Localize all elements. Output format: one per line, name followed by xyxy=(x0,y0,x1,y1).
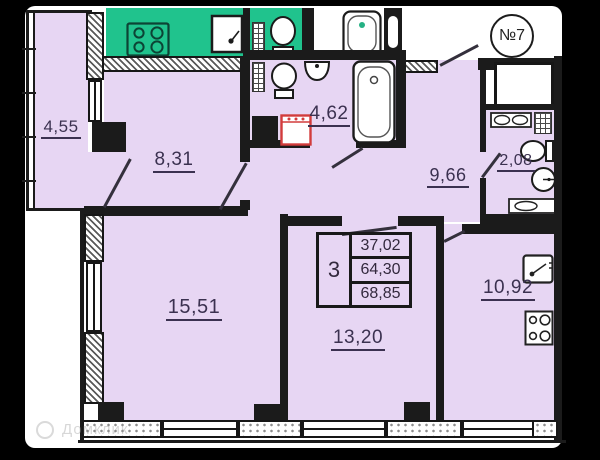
wall xyxy=(398,216,444,226)
window-icon xyxy=(302,420,386,438)
wall xyxy=(554,56,562,440)
radiator-icon xyxy=(252,62,265,92)
loggia-area: 4,55 xyxy=(41,117,80,139)
room-area-label: 13,20 xyxy=(316,328,400,349)
door-gap xyxy=(86,152,104,206)
wall xyxy=(84,206,248,216)
room-area-label: 8,31 xyxy=(128,150,220,171)
sink-icon xyxy=(210,14,244,54)
wall xyxy=(280,214,288,422)
unit-number-badge: №7 xyxy=(490,14,534,58)
wc-counter xyxy=(490,112,532,128)
wall xyxy=(480,214,562,224)
hallway-area: 9,66 xyxy=(427,165,468,188)
room-area-label: 9,66 xyxy=(412,166,484,186)
room-area-label: 4,62 xyxy=(296,104,362,125)
rooms-count: 3 xyxy=(319,235,352,305)
wall-insulated xyxy=(238,420,302,438)
wall-pier xyxy=(92,122,126,152)
floor-plan: №7 xyxy=(0,0,600,460)
door-gap xyxy=(310,140,356,148)
watermark-logo-icon xyxy=(36,421,54,439)
glazing-tick xyxy=(22,92,36,94)
wall-hatched xyxy=(86,12,104,80)
radiator-icon xyxy=(534,112,552,134)
toilet-icon xyxy=(268,62,300,100)
window-icon xyxy=(462,420,534,438)
wall-hatched xyxy=(84,214,104,262)
hall-upper-fill xyxy=(406,60,480,148)
washbasin-icon xyxy=(303,60,331,82)
wall-insulated xyxy=(386,420,462,438)
wall xyxy=(486,104,558,110)
wall xyxy=(286,216,342,226)
wall xyxy=(436,224,444,422)
wall-hatched xyxy=(84,332,104,404)
area-summary-table: 3 37,02 64,30 68,85 xyxy=(316,232,412,308)
wall xyxy=(26,10,92,13)
kitchen-area: 10,92 xyxy=(481,277,535,301)
wc-area: 2,08 xyxy=(497,152,534,172)
total-area-value: 68,85 xyxy=(352,281,409,305)
wall-pier xyxy=(252,116,278,146)
wc-counter xyxy=(508,198,556,214)
wall-insulated xyxy=(532,420,558,438)
room-1-area: 8,31 xyxy=(153,149,196,173)
door-gap xyxy=(342,216,398,226)
unit-number-label: №7 xyxy=(499,27,525,45)
glazing-tick xyxy=(22,48,36,50)
room-3-area: 13,20 xyxy=(331,327,385,351)
wardrobe xyxy=(494,62,554,108)
wall xyxy=(240,200,250,210)
stove-icon xyxy=(126,22,170,58)
room-area-label: 10,92 xyxy=(470,278,546,299)
window-icon xyxy=(162,420,238,438)
window-icon xyxy=(88,80,102,122)
wall xyxy=(78,440,566,443)
washbasin-icon xyxy=(388,16,398,48)
floor-area-value: 64,30 xyxy=(352,256,409,280)
room-area-label: 15,51 xyxy=(146,296,242,318)
bathtub-icon xyxy=(352,60,396,144)
wall-hatched xyxy=(90,56,244,72)
window-icon xyxy=(86,262,102,332)
wall xyxy=(244,50,406,60)
bathroom-area: 4,62 xyxy=(308,103,351,127)
room-loggia xyxy=(35,13,88,208)
room-2-area: 15,51 xyxy=(166,296,223,321)
wall-hatched xyxy=(404,60,438,73)
living-area-value: 37,02 xyxy=(352,235,409,256)
wall xyxy=(462,224,556,234)
room-area-label: 4,55 xyxy=(32,118,90,137)
glazing-tick xyxy=(22,180,36,182)
wall xyxy=(33,12,35,208)
room-area-label: 2,08 xyxy=(490,152,542,170)
stove-icon xyxy=(524,310,554,346)
wall xyxy=(396,50,406,148)
wall-pier xyxy=(404,402,430,422)
watermark-text: Домклик xyxy=(62,421,172,438)
